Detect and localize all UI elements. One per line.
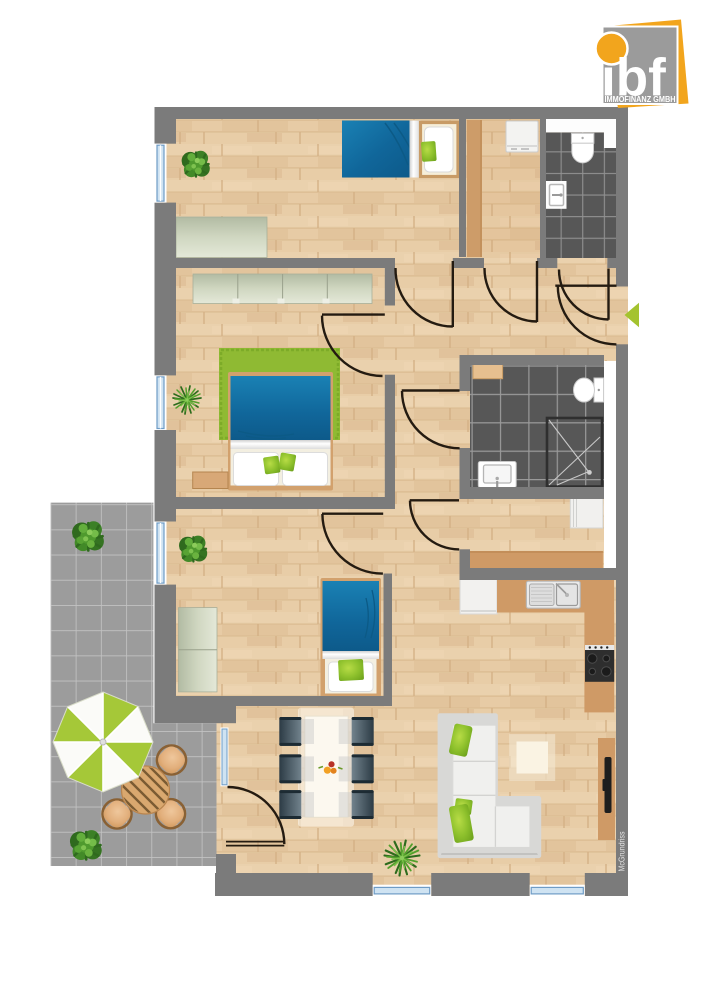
svg-text:McGrundriss: McGrundriss: [617, 832, 627, 872]
svg-text:IMMOFINANZ GMBH: IMMOFINANZ GMBH: [605, 95, 676, 104]
